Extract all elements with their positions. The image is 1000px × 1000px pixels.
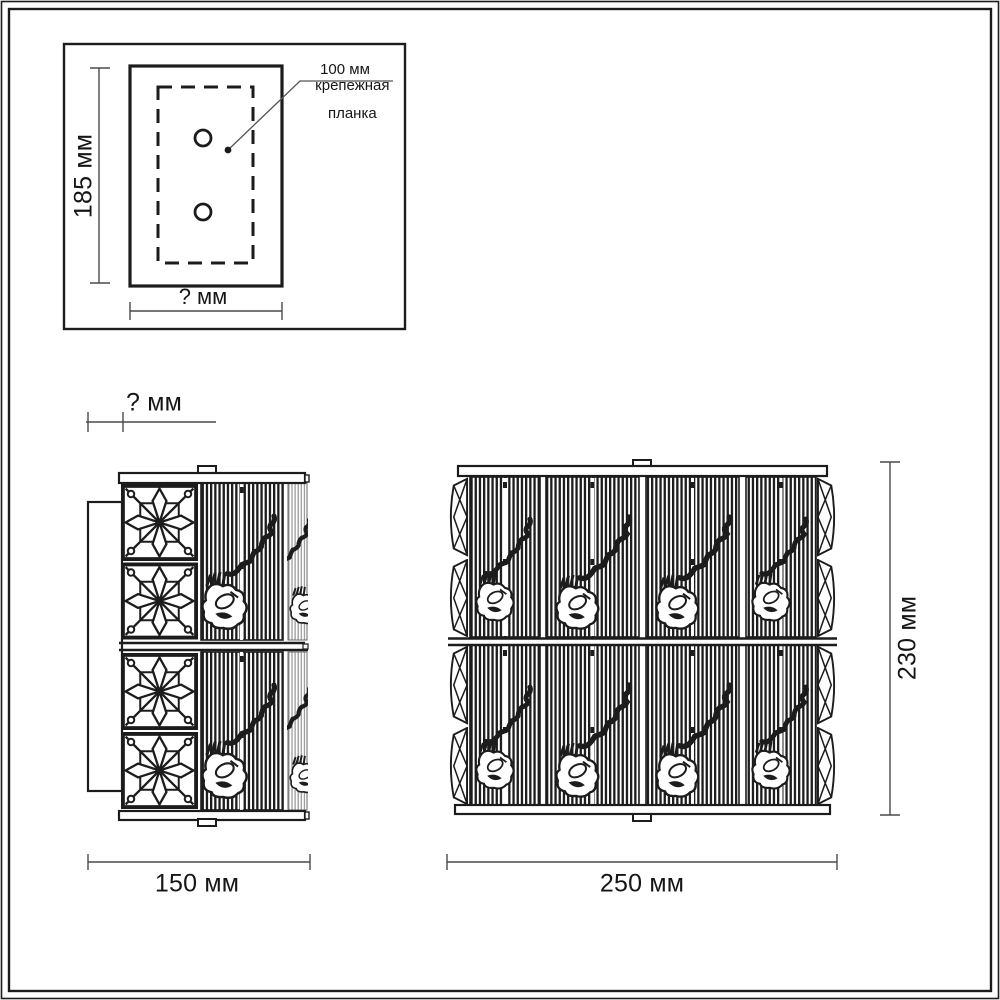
side-depth-label: ? мм xyxy=(126,389,182,418)
front-height-label: 230 мм xyxy=(894,596,923,680)
inset-width-label: ? мм xyxy=(179,284,228,310)
mounting-bracket-label-line2: планка xyxy=(328,105,377,122)
inset-height-label: 185 мм xyxy=(70,134,99,218)
front-view-drawing xyxy=(448,460,837,821)
screw-hole-top xyxy=(195,130,211,146)
screw-hole-bottom xyxy=(195,204,211,220)
side-width-label: 150 мм xyxy=(155,870,239,899)
front-width-label: 250 мм xyxy=(600,870,684,899)
diagram-canvas: 185 мм ? мм 100 мм крепежная планка ? мм… xyxy=(0,0,1000,1000)
side-width-dimension-line xyxy=(88,854,310,870)
front-width-dimension-line xyxy=(447,854,837,870)
front-top-plate xyxy=(458,466,827,476)
side-view-drawing xyxy=(88,466,319,826)
mounting-bracket-label: крепежная планка xyxy=(299,65,390,135)
side-top-plate xyxy=(119,473,305,483)
front-bottom-plate xyxy=(455,805,830,814)
diagram-artwork xyxy=(0,0,1000,1000)
mounting-bracket-label-line1: крепежная xyxy=(315,77,389,94)
wall-bracket xyxy=(88,502,122,791)
